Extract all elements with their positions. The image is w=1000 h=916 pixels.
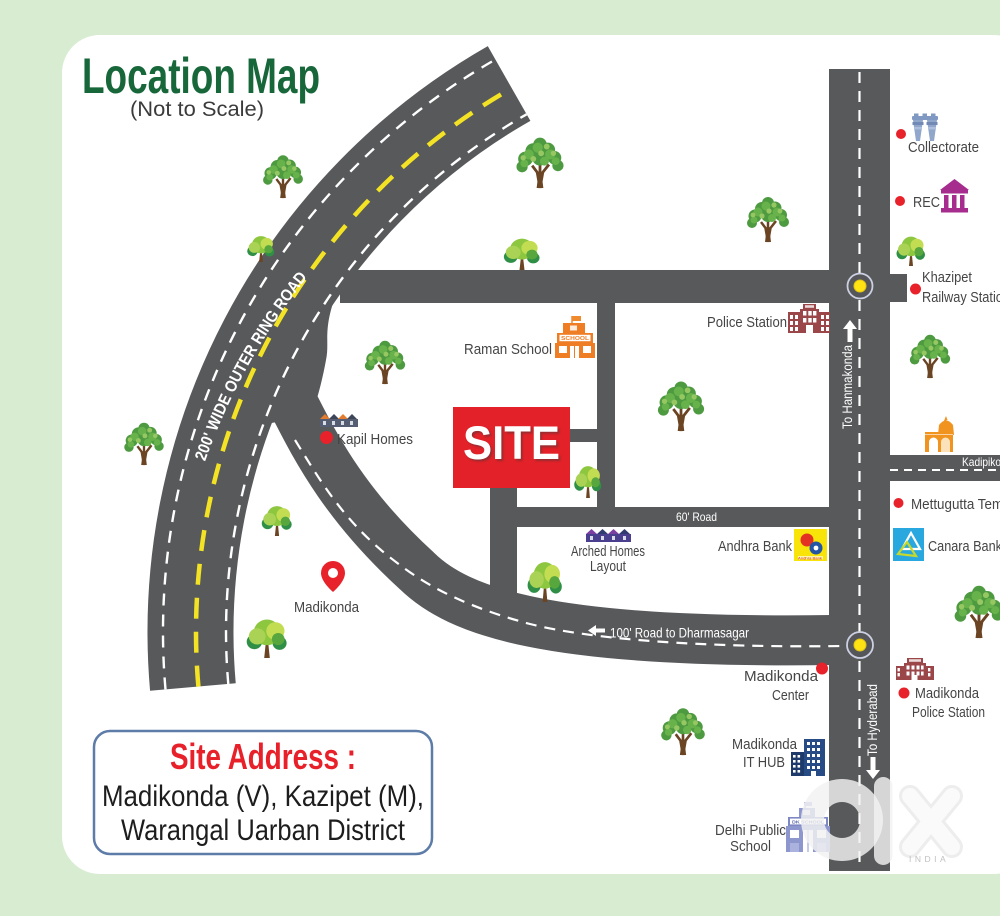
svg-text:REC: REC: [913, 194, 940, 211]
svg-text:Site Address :: Site Address :: [170, 736, 356, 777]
svg-text:IT HUB: IT HUB: [743, 754, 785, 771]
svg-text:60' Road: 60' Road: [676, 510, 717, 524]
svg-text:Layout: Layout: [590, 558, 627, 575]
svg-text:To Hanmakonda: To Hanmakonda: [840, 345, 855, 429]
svg-text:Police Station: Police Station: [707, 314, 787, 331]
svg-text:Madikonda (V), Kazipet (M),: Madikonda (V), Kazipet (M),: [102, 780, 424, 813]
svg-text:Madikonda: Madikonda: [915, 685, 980, 702]
svg-text:Khazipet: Khazipet: [922, 269, 973, 286]
svg-text:(Not to Scale): (Not to Scale): [130, 98, 264, 121]
svg-text:Delhi Public: Delhi Public: [715, 822, 786, 839]
svg-text:100' Road to Dharmasagar: 100' Road to Dharmasagar: [610, 625, 749, 641]
svg-text:Kapil Homes: Kapil Homes: [337, 431, 413, 448]
svg-text:Andhra Bank: Andhra Bank: [798, 556, 822, 560]
svg-text:SCHOOL: SCHOOL: [561, 336, 589, 342]
svg-text:Madikonda: Madikonda: [744, 668, 819, 685]
svg-text:Police Station: Police Station: [912, 704, 985, 721]
svg-text:Raman School: Raman School: [464, 341, 552, 358]
svg-text:SITE: SITE: [463, 416, 560, 469]
svg-text:Madikonda: Madikonda: [732, 736, 798, 753]
svg-text:Location Map: Location Map: [82, 48, 320, 104]
svg-text:Kadipikonda: Kadipikonda: [962, 455, 1000, 469]
svg-text:Madikonda: Madikonda: [294, 599, 360, 616]
svg-text:Andhra Bank: Andhra Bank: [718, 538, 792, 555]
svg-text:School: School: [730, 838, 771, 855]
svg-text:Warangal Uarban District: Warangal Uarban District: [121, 814, 406, 847]
svg-text:Center: Center: [772, 687, 809, 704]
svg-text:Canara Bank: Canara Bank: [928, 538, 1000, 555]
svg-text:Collectorate: Collectorate: [908, 139, 979, 156]
svg-text:Railway Station: Railway Station: [922, 289, 1000, 306]
svg-text:Mettugutta Temple: Mettugutta Temple: [911, 496, 1000, 513]
svg-text:INDIA: INDIA: [909, 854, 949, 864]
svg-text:To Hyderabad: To Hyderabad: [865, 684, 880, 756]
